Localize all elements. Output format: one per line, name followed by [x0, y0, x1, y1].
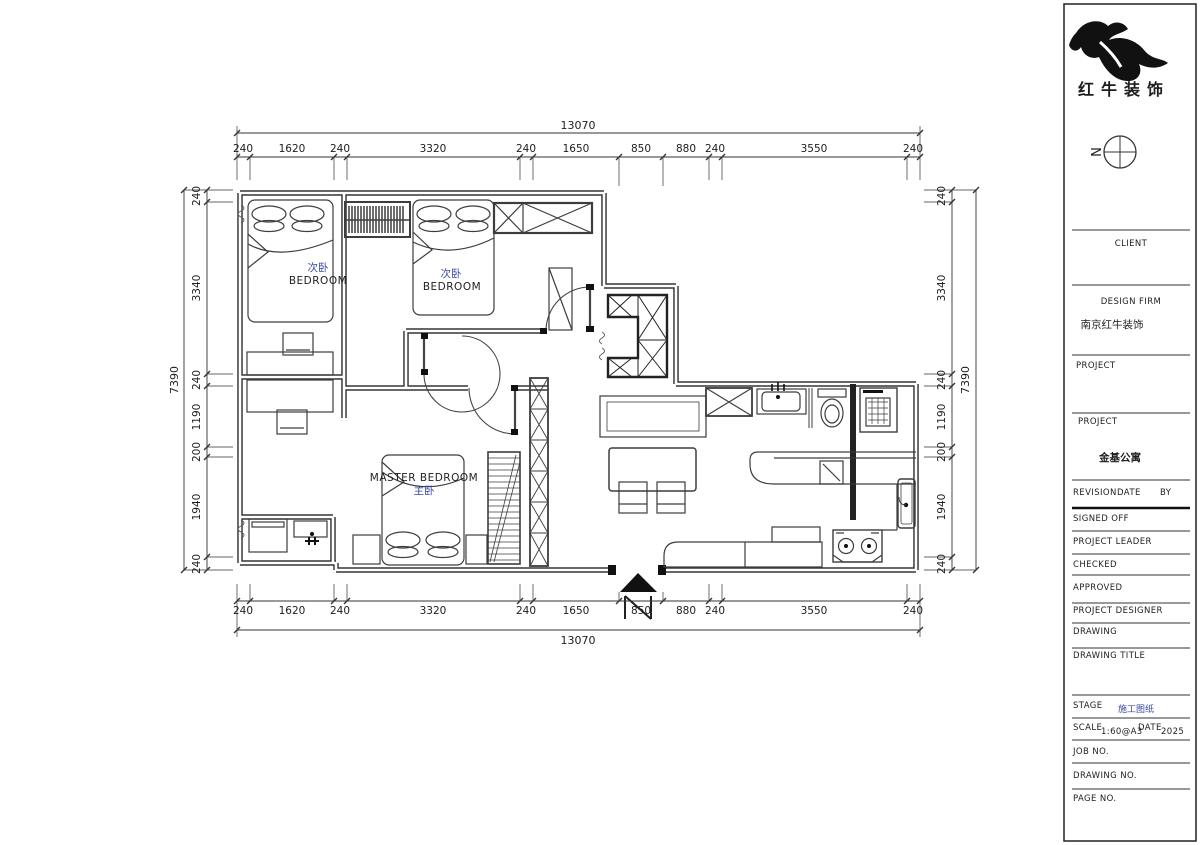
bedroom1-label-en: BEDROOM: [289, 275, 347, 287]
revision-label: REVISION: [1073, 488, 1117, 498]
dim-right-total: 7390: [959, 366, 972, 394]
dining-area: [600, 396, 822, 567]
toilet-tank: [818, 389, 846, 397]
dim: 240: [936, 554, 948, 574]
page-no-label: PAGE NO.: [1073, 794, 1117, 804]
kitchen: [750, 452, 916, 562]
bedroom2-door-arc: [546, 287, 590, 331]
bedroom-1: [247, 200, 333, 375]
chair: [619, 482, 647, 513]
drawing-no-label: DRAWING NO.: [1073, 771, 1137, 781]
nightstand: [466, 535, 487, 564]
dim: 1940: [191, 494, 203, 521]
entry-closet: [608, 295, 667, 377]
dim: 240: [705, 143, 725, 155]
master-label-zh: 主卧: [414, 484, 435, 497]
dim: 240: [191, 554, 203, 574]
dim: 1620: [279, 605, 306, 617]
dim: 240: [903, 143, 923, 155]
dim: 880: [676, 143, 696, 155]
dim: 240: [191, 370, 203, 390]
cross-cabinet-column: [530, 378, 548, 566]
design-firm-label: DESIGN FIRM: [1101, 297, 1162, 307]
signed-off-label: SIGNED OFF: [1073, 514, 1129, 524]
chair: [277, 410, 307, 434]
bench-sofa: [664, 542, 822, 567]
client-label: CLIENT: [1115, 239, 1148, 249]
dim: 3550: [801, 143, 828, 155]
dim: 1940: [936, 494, 948, 521]
dim: 880: [676, 605, 696, 617]
sink-basin: [762, 392, 800, 411]
dim: 3340: [936, 275, 948, 302]
dim: 240: [705, 605, 725, 617]
bedroom1-door-arc: [424, 336, 500, 412]
bed: [413, 200, 494, 315]
dim: 240: [516, 143, 536, 155]
dim: 3320: [420, 143, 447, 155]
walls: [238, 193, 916, 570]
dim: 1190: [191, 404, 203, 431]
cabinet: [249, 519, 287, 552]
by-label: BY: [1160, 488, 1172, 498]
dimension-left: 7390 240 3340 240 1190 200 1940 240: [168, 186, 233, 574]
bedroom2-label-en: BEDROOM: [423, 281, 481, 293]
north-compass-icon: N: [1090, 136, 1136, 168]
chair: [657, 482, 685, 513]
dim: 3320: [420, 605, 447, 617]
floor-plan-svg: 次卧 BEDROOM 次卧 BEDROOM MASTER BEDROOM 主卧 …: [0, 0, 1200, 845]
stage-label: STAGE: [1073, 701, 1103, 711]
dim: 240: [233, 143, 253, 155]
dim: 850: [631, 605, 651, 617]
dim: 200: [936, 442, 948, 462]
stage-value: 施工图纸: [1118, 703, 1154, 715]
dim: 240: [330, 143, 350, 155]
master-label-en: MASTER BEDROOM: [370, 472, 478, 484]
bathroom: [706, 382, 897, 432]
dim-bottom-total: 13070: [561, 634, 596, 647]
north-label: N: [1090, 147, 1105, 157]
job-no-label: JOB NO.: [1072, 747, 1109, 757]
dim: 240: [191, 186, 203, 206]
drawing-label: DRAWING: [1073, 627, 1117, 637]
master-door-arc: [469, 388, 515, 434]
side-table: [772, 527, 820, 542]
dim-top-total: 13070: [561, 119, 596, 132]
dim: 200: [191, 442, 203, 462]
scale-value: 1:60@A3: [1101, 727, 1143, 737]
date2-label: DATE: [1138, 723, 1162, 733]
design-firm-value: 南京红牛装饰: [1081, 318, 1144, 331]
slatted-wardrobe: [345, 202, 410, 237]
door-hinge-blocks: [421, 284, 666, 575]
company-logo: 红牛装饰: [1069, 21, 1170, 99]
project2-label: PROJECT: [1078, 417, 1118, 427]
dim: 240: [330, 605, 350, 617]
dim: 1650: [563, 605, 590, 617]
drawing-title-label: DRAWING TITLE: [1073, 651, 1145, 661]
bed: [248, 200, 333, 322]
dim: 3340: [191, 275, 203, 302]
dim: 240: [233, 605, 253, 617]
dim: 240: [936, 186, 948, 206]
bedroom1-label-zh: 次卧: [308, 261, 329, 274]
dimension-right: 7390 240 3340 240 1190 200 1940 240: [924, 186, 979, 574]
project-designer-label: PROJECT DESIGNER: [1073, 606, 1163, 616]
bedroom2-label-zh: 次卧: [441, 267, 462, 280]
title-block: 红牛装饰 N CLIENT DESIGN FIRM 南京红牛装饰 PROJECT…: [1064, 4, 1196, 841]
project1-label: PROJECT: [1076, 361, 1116, 371]
desk: [247, 380, 333, 412]
dim: 1190: [936, 404, 948, 431]
toilet-partition: [809, 388, 812, 428]
dim: 3550: [801, 605, 828, 617]
date-label: DATE: [1117, 488, 1141, 498]
dim: 1620: [279, 143, 306, 155]
blanket: [413, 232, 494, 264]
cross-wardrobe: [494, 203, 592, 233]
dim: 240: [936, 370, 948, 390]
scale-label: SCALE: [1073, 723, 1102, 733]
doors: [421, 284, 666, 575]
faucet-symbol: [305, 537, 319, 545]
project2-value: 金基公寓: [1098, 451, 1141, 464]
dim: 850: [631, 143, 651, 155]
bedroom-2: [345, 200, 592, 330]
counter: [750, 452, 916, 530]
dim: 1650: [563, 143, 590, 155]
company-name: 红牛装饰: [1078, 80, 1170, 99]
drawing-sheet: 次卧 BEDROOM 次卧 BEDROOM MASTER BEDROOM 主卧 …: [0, 0, 1200, 845]
dimension-top: 13070 240 1620 240 3320 240 1650 850 880…: [233, 119, 923, 186]
gas-stove: [833, 530, 882, 562]
nightstand: [353, 535, 380, 564]
dimension-bottom: 13070 240 1620 240 3320 240 1650 850 880…: [233, 584, 923, 647]
dim: 240: [516, 605, 536, 617]
dim: 240: [903, 605, 923, 617]
kitchen-sink: [898, 479, 915, 528]
dim-left-total: 7390: [168, 366, 181, 394]
date-value: 2025: [1161, 727, 1184, 737]
washing-machine: [860, 388, 897, 432]
louver-wardrobe: [488, 452, 520, 564]
project-leader-label: PROJECT LEADER: [1073, 537, 1152, 547]
dining-table: [609, 448, 696, 491]
entrance-arrow-icon: [620, 573, 657, 592]
approved-label: APPROVED: [1073, 583, 1122, 593]
checked-label: CHECKED: [1073, 560, 1117, 570]
